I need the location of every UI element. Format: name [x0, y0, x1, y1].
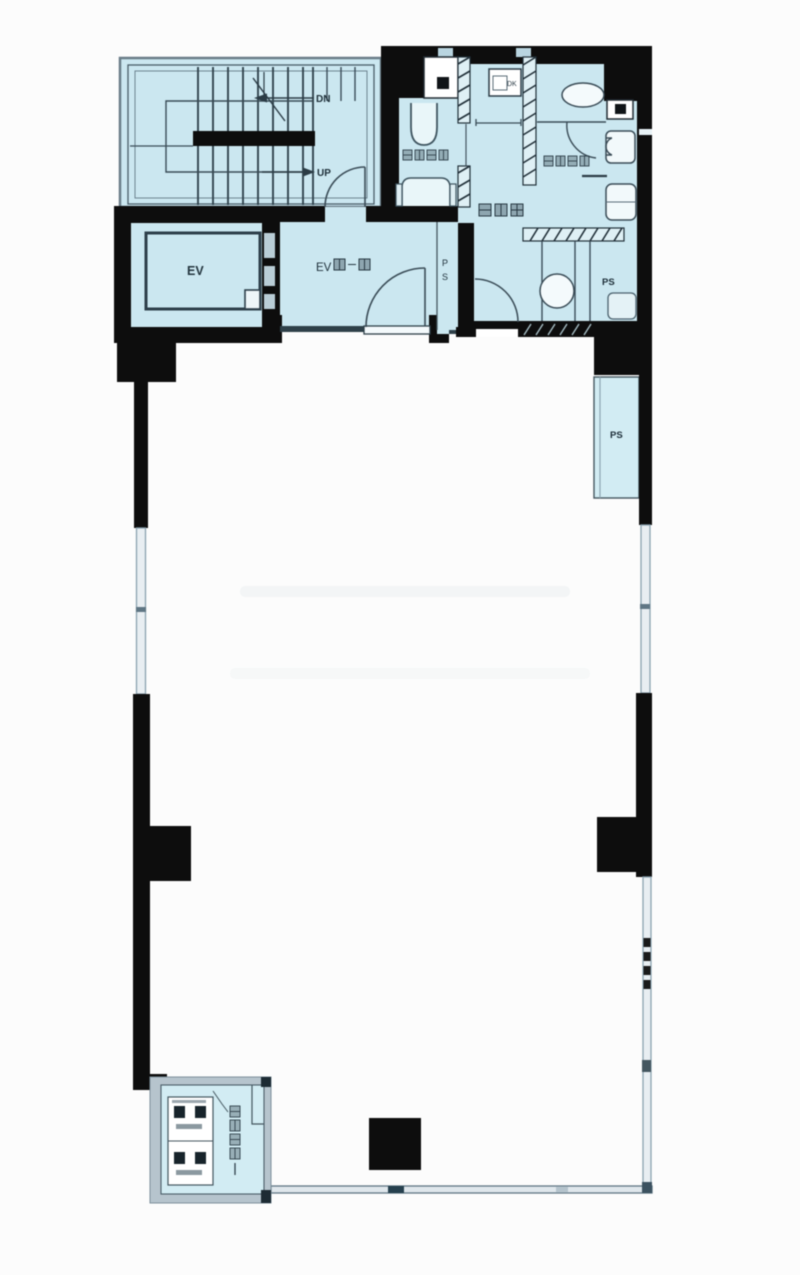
svg-text:UP: UP	[317, 168, 331, 179]
svg-text:DN: DN	[316, 94, 330, 105]
svg-text:PS: PS	[602, 277, 615, 288]
svg-text:P: P	[442, 258, 448, 268]
svg-text:EV: EV	[187, 264, 204, 278]
svg-text:PS: PS	[610, 430, 623, 441]
svg-text:EV: EV	[316, 262, 332, 274]
svg-text:DK: DK	[507, 81, 517, 88]
svg-text:S: S	[442, 272, 448, 282]
